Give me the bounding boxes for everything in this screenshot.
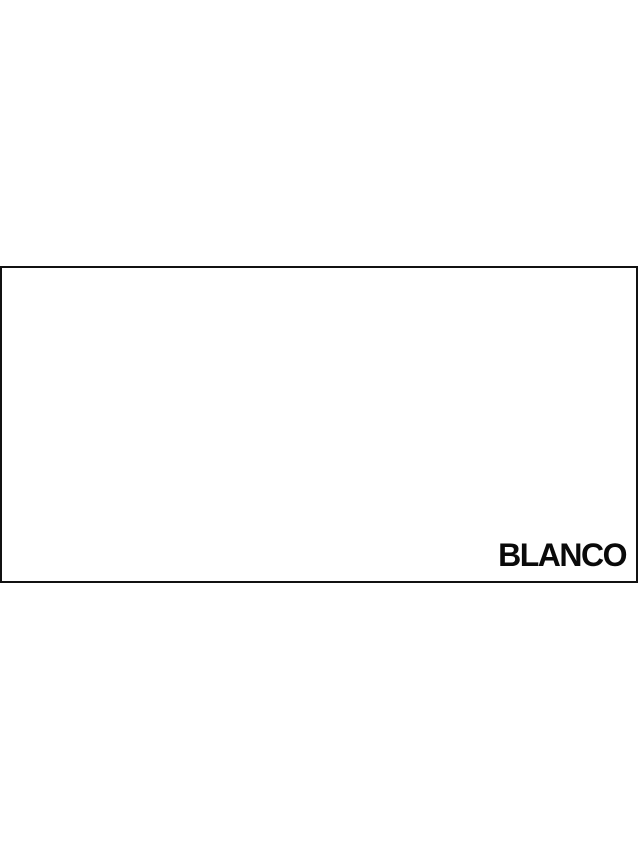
color-swatch: BLANCO	[0, 266, 638, 583]
page-background: BLANCO	[0, 0, 640, 851]
swatch-label: BLANCO	[498, 539, 626, 571]
